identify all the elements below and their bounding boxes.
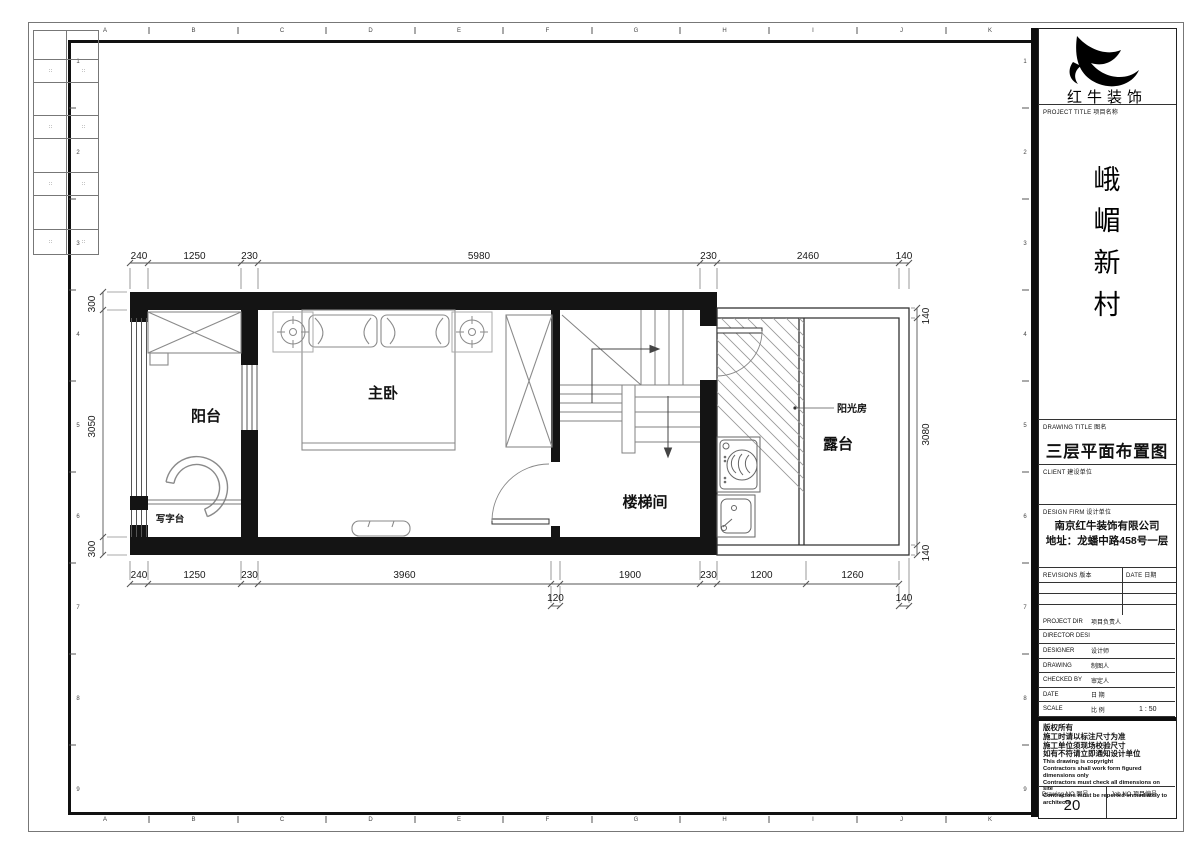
revisions-label: REVISIONS 版本 — [1043, 570, 1092, 579]
staff-role-zh: 日 期 — [1091, 690, 1139, 699]
dim-label: 230 — [700, 570, 717, 581]
staff-role-en: PROJECT DIR — [1043, 619, 1091, 625]
staff-role-en: CHECKED BY — [1043, 677, 1091, 683]
project-name-char: 峨 — [1038, 158, 1176, 197]
staff-role-zh: 审定人 — [1091, 676, 1139, 685]
dim-label: 230 — [700, 251, 717, 262]
staff-role-en: SCALE — [1043, 706, 1091, 712]
dim-label: 120 — [547, 593, 564, 604]
divider — [1122, 567, 1123, 615]
dim-label: 1250 — [183, 570, 206, 581]
divider — [1038, 464, 1176, 465]
copyright-line: This drawing is copyright — [1043, 759, 1171, 766]
sunroom-walls — [717, 308, 909, 555]
divider — [1038, 604, 1176, 605]
design-firm-address: 地址：龙蟠中路458号一层 — [1038, 533, 1176, 548]
drawing-no-cell: Drawing NO 图号 20 — [1038, 787, 1106, 818]
room-label-stairwell: 楼梯间 — [622, 493, 667, 511]
staff-table: PROJECT DIR项目负责人 DIRECTOR DESI DESIGNER设… — [1038, 615, 1175, 717]
dim-label: 140 — [896, 251, 913, 262]
drawing-title-label: DRAWING TITLE 图名 — [1043, 422, 1107, 431]
staff-row: DRAWING制图人 — [1038, 659, 1175, 674]
dim-label: 230 — [241, 570, 258, 581]
project-title-label: PROJECT TITLE 项目名称 — [1043, 107, 1118, 116]
room-label-bedroom: 主卧 — [368, 384, 398, 402]
staff-role-en: DATE — [1043, 692, 1091, 698]
dim-label: 300 — [87, 540, 98, 557]
wardrobe — [506, 315, 552, 447]
staff-row: DATE日 期 — [1038, 688, 1175, 703]
dim-label: 3050 — [87, 415, 98, 438]
divider — [1038, 504, 1176, 505]
staff-row: DESIGNER设计师 — [1038, 644, 1175, 659]
job-no-cell: Job NO 项目编号 — [1106, 787, 1175, 818]
desk-chair — [163, 444, 240, 519]
drawing-number-row: Drawing NO 图号 20 Job NO 项目编号 — [1038, 786, 1175, 818]
divider — [1038, 582, 1176, 583]
divider — [1038, 104, 1176, 105]
room-label-sunroom: 阳光房 — [837, 402, 867, 415]
project-name-char: 新 — [1038, 241, 1176, 280]
staff-value: 1 : 50 — [1139, 706, 1175, 713]
balcony-cabinet — [148, 312, 241, 365]
sink-icon — [717, 495, 755, 537]
radiator — [352, 521, 410, 536]
staff-role-zh: 制图人 — [1091, 661, 1139, 670]
project-name-char: 村 — [1038, 283, 1176, 322]
copyright-line: Contractors shall work form figured dime… — [1043, 766, 1171, 780]
dim-label: 2460 — [797, 251, 820, 262]
dim-label: 240 — [131, 251, 148, 262]
heavy-divider — [1031, 717, 1176, 721]
staff-row: DIRECTOR DESI — [1038, 630, 1175, 645]
staff-row: PROJECT DIR项目负责人 — [1038, 615, 1175, 630]
stairs — [560, 310, 700, 453]
drawing-no-value: 20 — [1038, 797, 1106, 814]
staff-role-en: DIRECTOR DESI — [1043, 633, 1091, 639]
divider — [1038, 567, 1176, 568]
divider — [1038, 419, 1176, 420]
job-no-label: Job NO 项目编号 — [1111, 789, 1157, 798]
dim-label: 140 — [921, 544, 932, 561]
dim-label: 3960 — [393, 570, 416, 581]
staff-role-zh: 设计师 — [1091, 646, 1139, 655]
bedroom-door — [492, 464, 549, 524]
dim-label: 140 — [896, 593, 913, 604]
room-label-terrace: 露台 — [823, 435, 853, 453]
room-label-desk: 写字台 — [156, 513, 185, 525]
client-label: CLIENT 建设单位 — [1043, 467, 1092, 476]
design-firm-name: 南京红牛装饰有限公司 — [1038, 518, 1176, 533]
dim-label: 240 — [131, 570, 148, 581]
project-name-char: 嵋 — [1038, 199, 1176, 238]
desk-wall-stub — [130, 496, 148, 510]
dim-label: 1260 — [841, 570, 864, 581]
staff-row: SCALE比 例1 : 50 — [1038, 702, 1175, 717]
dim-label: 3080 — [921, 423, 932, 446]
room-label-balcony: 阳台 — [191, 407, 221, 425]
dim-label: 1900 — [619, 570, 642, 581]
bed — [302, 310, 455, 450]
dim-label: 1200 — [750, 570, 773, 581]
ceiling-light-icon — [452, 312, 492, 352]
staff-role-en: DRAWING — [1043, 663, 1091, 669]
design-firm-label: DESIGN FIRM 设计单位 — [1043, 507, 1111, 516]
drawing-sheet: AABBCCDDEEFFGGHHIIJJKK112233445566778899… — [0, 0, 1200, 844]
date-column-label: DATE 日期 — [1126, 570, 1157, 579]
dim-label: 5980 — [468, 251, 491, 262]
writing-desk — [148, 500, 241, 504]
sunroom-hatch — [630, 318, 1029, 548]
dim-label: 1250 — [183, 251, 206, 262]
staff-row: CHECKED BY审定人 — [1038, 673, 1175, 688]
washing-machine-icon — [717, 437, 760, 492]
dim-label: 300 — [87, 295, 98, 312]
staff-role-zh: 比 例 — [1091, 705, 1139, 714]
title-block-heavy-bar — [1031, 28, 1038, 817]
staff-role-zh: 项目负责人 — [1091, 617, 1139, 626]
dim-label: 230 — [241, 251, 258, 262]
floor-plan: 2401250230598023024601402401250230396019… — [0, 0, 1200, 844]
copyright-line: 如有不符请立即通知设计单位 — [1043, 750, 1171, 759]
drawing-title: 三层平面布置图 — [1038, 438, 1176, 462]
ceiling-light-icon — [273, 312, 313, 352]
dim-label: 140 — [921, 307, 932, 324]
brand-logo-icon — [1063, 32, 1153, 87]
divider — [1038, 593, 1176, 594]
staff-role-en: DESIGNER — [1043, 648, 1091, 654]
